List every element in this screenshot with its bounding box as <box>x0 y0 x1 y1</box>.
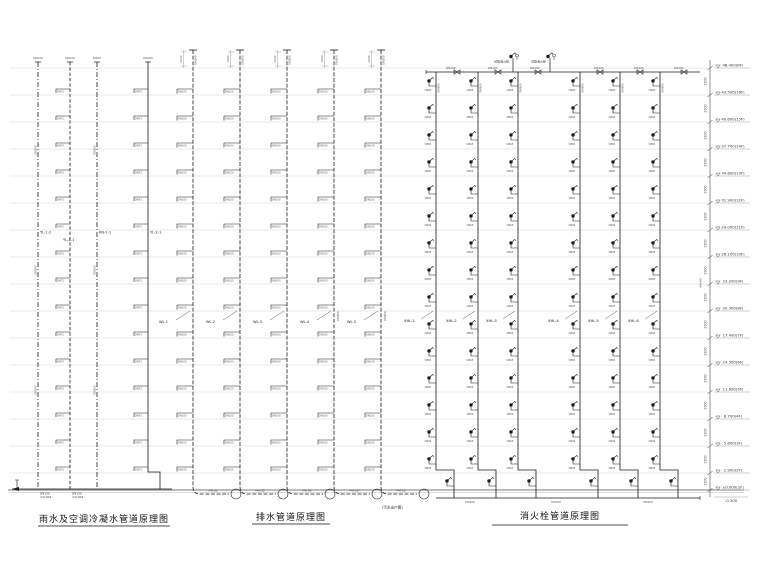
drawing-sheet: 雨水及空调冷凝水管道原理图 排水管道原理图 消火栓管道原理图 46.400(RF… <box>0 0 760 570</box>
label-leader <box>503 311 515 319</box>
hydrant-flag-icon <box>471 429 476 433</box>
hydrant-flag-icon <box>653 186 658 190</box>
hydrant-branch-pipe <box>471 110 478 113</box>
branch-label: DN100 <box>366 414 375 418</box>
hydrant-branch-label: DN65 <box>507 251 514 254</box>
hydrant-branch-pipe <box>429 245 436 248</box>
hydrant-flag-icon <box>573 294 578 298</box>
hydrant-branch-pipe <box>471 380 478 383</box>
outlet-slope-label: i=0.02 <box>349 489 359 493</box>
hydrant-branch-pipe <box>653 461 660 464</box>
test-hydrant-label: 试验消火栓 <box>494 59 509 64</box>
hydrant-branch-pipe <box>573 299 580 302</box>
hydrant-flag-icon <box>471 267 476 271</box>
branch-label: DN100 <box>272 414 281 418</box>
branch-label: DN100 <box>225 225 234 229</box>
hydrant-branch-label: DN65 <box>609 278 616 281</box>
hydrant-branch-pipe <box>653 137 660 140</box>
hydrant-branch-pipe <box>429 326 436 329</box>
hydrant-flag-icon <box>573 240 578 244</box>
branch-label: DN100 <box>366 117 375 121</box>
storey-height-dim: 2900 <box>704 401 708 409</box>
hydrant-flag-icon <box>573 402 578 406</box>
hydrant-branch-pipe <box>613 245 620 248</box>
hydrant-branch-label: DN65 <box>467 278 474 281</box>
vent-side-label: DN100 <box>335 55 339 65</box>
hydrant-flag-icon <box>613 267 618 271</box>
branch-label: DN100 <box>225 90 234 94</box>
branch-label: DN100 <box>319 90 328 94</box>
hydrant-branch-label: DN65 <box>425 170 432 173</box>
hydrant-flag-icon <box>511 429 516 433</box>
hydrant-flag-icon <box>613 429 618 433</box>
elevation-label: 29.000(11F) <box>721 225 745 230</box>
hydrant-branch-label: DN65 <box>609 170 616 173</box>
elevation-triangle-icon <box>716 335 720 338</box>
hydrant-branch-pipe <box>613 407 620 410</box>
branch-label: DN75 <box>57 251 64 255</box>
hydrant-flag-icon <box>613 402 618 406</box>
hydrant-branch-label: DN65 <box>609 386 616 389</box>
riser-size-label: DN100 <box>34 145 38 155</box>
riser-pipe <box>580 72 598 498</box>
hydrant-branch-label: DN65 <box>649 332 656 335</box>
hydrant-flag-icon <box>511 53 516 57</box>
vent-side-label: DN100 <box>382 55 386 65</box>
riser-size-label: DN100 <box>437 83 441 93</box>
hydrant-flag-icon <box>573 159 578 163</box>
branch-label: DN100 <box>225 441 234 445</box>
elevation-label: 8.700(4F) <box>724 414 743 419</box>
branch-label: DN100 <box>319 198 328 202</box>
hydrant-branch-pipe <box>653 353 660 356</box>
label-leader <box>463 311 475 319</box>
hydrant-branch-pipe <box>653 245 660 248</box>
riser-size-label: DN100 <box>661 83 665 93</box>
hydrant-flag-icon <box>511 78 516 82</box>
hydrant-branch-pipe <box>511 326 518 329</box>
branch-label: DN75 <box>57 224 64 228</box>
hydrant-riser-XHL-1: DN100DN65DN65DN65DN65DN65DN65DN65DN65DN6… <box>404 72 454 498</box>
hydrant-flag-icon <box>429 294 434 298</box>
hydrant-flag-icon <box>671 478 676 482</box>
hydrant-branch-label: DN65 <box>467 143 474 146</box>
riser-pipe <box>193 50 229 494</box>
hydrant-branch-pipe <box>429 110 436 113</box>
hydrant-flag-icon <box>573 105 578 109</box>
hydrant-branch-label: DN65 <box>507 305 514 308</box>
hydrant-branch-label: DN65 <box>425 413 432 416</box>
hydrant-branch-label: DN65 <box>569 440 576 443</box>
hydrant-flag-icon <box>613 240 618 244</box>
hydrant-branch-pipe <box>429 461 436 464</box>
hydrant-branch-label: DN65 <box>467 440 474 443</box>
hydrant-branch-pipe <box>573 191 580 194</box>
hydrant-branch-pipe <box>511 272 518 275</box>
branch-label: DN100 <box>225 279 234 283</box>
branch-label: DN75 <box>57 386 64 390</box>
hydrant-branch-label: DN65 <box>425 116 432 119</box>
vent-side-label: DN100 <box>241 55 245 65</box>
riser-id-label: YL-1-2 <box>40 231 51 235</box>
hydrant-branch-pipe <box>573 164 580 167</box>
branch-label: DN100 <box>272 90 281 94</box>
hydrant-branch-label: DN65 <box>425 467 432 470</box>
riser-size-label: DN100 <box>581 83 585 93</box>
hydrant-flag-icon <box>529 478 534 482</box>
riser-id-label: XHL-1 <box>404 319 415 323</box>
hydrant-flag-icon <box>613 375 618 379</box>
branch-label: DN100 <box>272 144 281 148</box>
hydrant-section-title: 消火栓管道原理图 <box>520 510 600 522</box>
branch-label: DN100 <box>225 387 234 391</box>
branch-label: DN100 <box>366 360 375 364</box>
hydrant-branch-label: DN65 <box>609 440 616 443</box>
detail-ref-circle <box>419 489 429 499</box>
branch-label: DN100 <box>366 198 375 202</box>
hydrant-flag-icon <box>573 456 578 460</box>
piping-schematic-drawing: 雨水及空调冷凝水管道原理图 排水管道原理图 消火栓管道原理图 46.400(RF… <box>0 0 760 570</box>
elevation-label: 20.300(8F) <box>723 306 744 311</box>
hydrant-branch-pipe <box>653 272 660 275</box>
hydrant-flag-icon <box>653 375 658 379</box>
hydrant-branch-pipe <box>653 191 660 194</box>
hydrant-branch-label: DN65 <box>609 197 616 200</box>
branch-label: DN100 <box>225 333 234 337</box>
hydrant-branch-label: DN65 <box>569 251 576 254</box>
outlet-slope-label: i=0.003 <box>40 495 51 499</box>
branch-label: DN100 <box>178 225 187 229</box>
hydrant-flag-icon <box>653 456 658 460</box>
hydrant-branch-label: DN65 <box>425 224 432 227</box>
hydrant-branch-pipe <box>653 83 660 86</box>
hydrant-branch-pipe <box>511 137 518 140</box>
label-leader <box>565 311 577 319</box>
branch-label: DN75 <box>135 197 142 201</box>
air-valve-icon <box>553 54 556 57</box>
outlet-slope-label: i=0.02 <box>396 489 406 493</box>
hydrant-flag-icon <box>447 478 452 482</box>
hydrant-flag-icon <box>429 402 434 406</box>
hydrant-branch-label: DN65 <box>467 467 474 470</box>
hydrant-branch-label: DN65 <box>569 197 576 200</box>
detail-ref-circle <box>372 489 382 499</box>
hydrant-branch-label: DN65 <box>425 251 432 254</box>
hydrant-flag-icon <box>429 375 434 379</box>
hydrant-branch-pipe <box>613 137 620 140</box>
hydrant-flag-icon <box>613 132 618 136</box>
hydrant-riser-XHL-5: DN100DN65DN65DN65DN65DN65DN65DN65DN65DN6… <box>588 72 638 498</box>
hydrant-branch-label: DN65 <box>507 89 514 92</box>
label-leader <box>176 311 190 320</box>
elevation-triangle-icon <box>716 173 720 176</box>
label-leader <box>605 311 617 319</box>
hydrant-branch-pipe <box>511 434 518 437</box>
hydrant-branch-label: DN65 <box>649 89 656 92</box>
branch-label: DN75 <box>135 467 142 471</box>
hydrant-branch-pipe <box>613 164 620 167</box>
branch-label: DN100 <box>225 360 234 364</box>
hydrant-branch-label: DN65 <box>649 440 656 443</box>
hydrant-flag-icon <box>429 186 434 190</box>
branch-label: DN100 <box>319 468 328 472</box>
hydrant-flag-icon <box>613 456 618 460</box>
outlet-slope-label: i=0.02 <box>302 489 312 493</box>
hydrant-branch-label: DN65 <box>569 89 576 92</box>
hydrant-flag-icon <box>573 375 578 379</box>
below-ground-label: -0.300 <box>725 498 738 503</box>
hydrant-flag-icon <box>429 78 434 82</box>
hydrant-branch-label: DN65 <box>569 224 576 227</box>
branch-label: DN75 <box>57 143 64 147</box>
hydrant-branch-pipe <box>653 380 660 383</box>
hydrant-flag-icon <box>653 348 658 352</box>
riser-id-label: XHL-6 <box>628 319 639 323</box>
detail-ref-circle <box>278 489 288 499</box>
hydrant-flag-icon <box>653 240 658 244</box>
hydrant-branch-pipe <box>573 272 580 275</box>
hydrant-branch-label: DN65 <box>467 170 474 173</box>
branch-label: DN100 <box>272 468 281 472</box>
hydrant-branch-pipe <box>429 299 436 302</box>
hydrant-branch-pipe <box>653 326 660 329</box>
branch-label: DN75 <box>57 359 64 363</box>
storey-height-dim: 2900 <box>704 428 708 436</box>
branch-label: DN100 <box>272 198 281 202</box>
branch-label: DN100 <box>272 387 281 391</box>
hydrant-branch-pipe <box>511 245 518 248</box>
branch-label: DN75 <box>57 305 64 309</box>
hydrant-branch-pipe <box>511 461 518 464</box>
hydrant-branch-label: DN65 <box>467 413 474 416</box>
hydrant-branch-label: DN65 <box>649 413 656 416</box>
branch-label: DN75 <box>135 116 142 120</box>
hydrant-branch-pipe <box>573 353 580 356</box>
hydrant-flag-icon <box>471 132 476 136</box>
hydrant-flag-icon <box>573 321 578 325</box>
hydrant-flag-icon <box>471 375 476 379</box>
storey-height-dim: 2900 <box>704 212 708 220</box>
elevation-label: 2.900(2F) <box>724 468 743 473</box>
branch-label: DN100 <box>319 387 328 391</box>
hydrant-flag-icon <box>653 132 658 136</box>
branch-label: DN100 <box>319 225 328 229</box>
hydrant-branch-label: DN65 <box>649 305 656 308</box>
elevation-label: 46.400(RF) <box>722 63 744 68</box>
branch-label: DN75 <box>135 224 142 228</box>
hydrant-branch-label: DN65 <box>507 224 514 227</box>
hydrant-branch-label: DN65 <box>467 251 474 254</box>
hydrant-branch-label: DN65 <box>649 251 656 254</box>
hydrant-branch-pipe <box>511 83 518 86</box>
label-leader <box>223 311 237 320</box>
header-size-label: DN100 <box>674 66 684 70</box>
main-size-label: DN100 <box>465 500 475 504</box>
branch-label: DN100 <box>319 306 328 310</box>
hydrant-branch-label: DN65 <box>569 386 576 389</box>
elevation-label: ±0.000(1F) <box>722 485 744 490</box>
hydrant-branch-label: DN65 <box>609 251 616 254</box>
hydrant-branch-label: DN65 <box>425 278 432 281</box>
riser-id-label: WL-4 <box>300 320 310 324</box>
hydrant-branch-pipe <box>613 299 620 302</box>
branch-label: DN100 <box>319 117 328 121</box>
label-leader <box>421 311 433 319</box>
hydrant-branch-label: DN65 <box>609 89 616 92</box>
air-valve-icon <box>516 54 519 57</box>
riser-pipe <box>381 50 417 494</box>
hydrant-flag-icon <box>573 267 578 271</box>
label-leader <box>364 311 378 320</box>
storey-height-dim: 2900 <box>704 320 708 328</box>
hydrant-flag-icon <box>429 132 434 136</box>
riser-id-label: WL-3 <box>253 320 262 324</box>
riser-id-label: XHL-5 <box>588 319 599 323</box>
detail-ref-circle <box>325 489 335 499</box>
branch-label: DN100 <box>178 414 187 418</box>
branch-label: DN100 <box>319 144 328 148</box>
hydrant-branch-pipe <box>613 272 620 275</box>
test-hydrant-assembly: 试验消火栓 <box>494 53 519 72</box>
test-hydrant-label: 试验消火栓 <box>531 59 546 64</box>
branch-label: DN100 <box>272 306 281 310</box>
hydrant-branch-pipe <box>573 137 580 140</box>
hydrant-branch-pipe <box>471 434 478 437</box>
riser-pipe <box>436 72 454 498</box>
hydrant-branch-label: DN65 <box>507 143 514 146</box>
hydrant-flag-icon <box>511 294 516 298</box>
branch-label: DN100 <box>366 306 375 310</box>
drainage-section-title: 排水管道原理图 <box>256 511 326 523</box>
hydrant-header: DN100DN100DN100DN100DN100DN100 <box>426 66 700 74</box>
hydrant-flag-icon <box>631 478 636 482</box>
hydrant-branch-label: DN65 <box>507 197 514 200</box>
hydrant-flag-icon <box>429 267 434 271</box>
hydrant-branch-pipe <box>429 407 436 410</box>
elevation-triangle-icon <box>716 146 720 149</box>
hydrant-branch-pipe <box>511 407 518 410</box>
hydrant-branch-pipe <box>447 483 454 486</box>
hydrant-branch-label: DN65 <box>425 143 432 146</box>
hydrant-flag-icon <box>429 213 434 217</box>
hydrant-branch-pipe <box>613 434 620 437</box>
hydrant-branch-label: DN65 <box>467 116 474 119</box>
elevation-triangle-icon <box>716 92 720 95</box>
hydrant-branch-label: DN65 <box>569 143 576 146</box>
hydrant-branch-label: DN65 <box>507 332 514 335</box>
hydrant-branch-pipe <box>471 137 478 140</box>
riser-pipe <box>518 72 536 498</box>
hydrant-branch-pipe <box>429 272 436 275</box>
rainwater-riser-YL-1-1: DN100DN75DN75DN75DN75DN75DN75DN75DN75DN7… <box>56 56 75 489</box>
storey-height-dim: 2900 <box>704 77 708 85</box>
vent-height-dim: 2000 <box>320 55 324 62</box>
hydrant-branch-label: DN65 <box>467 305 474 308</box>
hydrant-branch-label: DN65 <box>569 413 576 416</box>
label-leader <box>270 311 284 320</box>
hydrant-flag-icon <box>573 78 578 82</box>
hydrant-branch-pipe <box>429 434 436 437</box>
hydrant-branch-label: DN65 <box>467 224 474 227</box>
branch-label: DN100 <box>225 144 234 148</box>
hydrant-branch-pipe <box>471 326 478 329</box>
branch-label: DN75 <box>135 251 142 255</box>
hydrant-riser-XHL-3: DN100DN65DN65DN65DN65DN65DN65DN65DN65DN6… <box>486 72 536 498</box>
branch-label: DN75 <box>57 89 64 93</box>
branch-label: DN100 <box>178 171 187 175</box>
outlet-slope-label: i=0.003 <box>72 495 83 499</box>
vent-note-label: DN100 <box>336 311 340 321</box>
hydrant-branch-label: DN65 <box>649 467 656 470</box>
elevation-triangle-icon <box>716 281 720 284</box>
branch-label: DN100 <box>366 252 375 256</box>
hydrant-flag-icon <box>653 402 658 406</box>
branch-label: DN100 <box>319 441 328 445</box>
hydrant-flag-icon <box>653 429 658 433</box>
hydrant-branch-pipe <box>613 218 620 221</box>
hydrant-branch-label: DN65 <box>569 332 576 335</box>
hydrant-flag-icon <box>471 159 476 163</box>
hydrant-branch-pipe <box>429 137 436 140</box>
hydrant-branch-label: DN65 <box>569 278 576 281</box>
hydrant-branch-label: DN65 <box>649 386 656 389</box>
hydrant-flag-icon <box>471 240 476 244</box>
outlet-slope-label: i=0.02 <box>255 489 265 493</box>
hydrant-branch-label: DN65 <box>569 170 576 173</box>
riser-pipe <box>334 50 370 494</box>
hydrant-branch-label: DN65 <box>569 359 576 362</box>
branch-label: DN100 <box>178 252 187 256</box>
hydrant-flag-icon <box>511 159 516 163</box>
hydrant-branch-pipe <box>591 483 598 486</box>
hydrant-flag-icon <box>471 456 476 460</box>
storey-height-dim: 2900 <box>704 185 708 193</box>
branch-label: DN100 <box>225 414 234 418</box>
branch-label: DN75 <box>135 332 142 336</box>
hydrant-flag-icon <box>613 294 618 298</box>
rainwater-riser-YL-2-1: DN100DN75DN75DN75DN75DN75DN75DN75DN75DN7… <box>134 56 161 489</box>
hydrant-flag-icon <box>573 132 578 136</box>
branch-label: DN100 <box>366 387 375 391</box>
hydrant-branch-pipe <box>489 483 496 486</box>
hydrant-branch-pipe <box>471 164 478 167</box>
hydrant-branch-label: DN65 <box>649 224 656 227</box>
header-size-label: DN100 <box>488 66 498 70</box>
branch-label: DN100 <box>366 171 375 175</box>
elevation-triangle-icon <box>716 389 720 392</box>
elevation-triangle-icon <box>716 200 720 203</box>
hydrant-branch-pipe <box>613 461 620 464</box>
hydrant-flag-icon <box>471 78 476 82</box>
branch-label: DN100 <box>319 279 328 283</box>
hydrant-branch-pipe <box>573 218 580 221</box>
hydrant-flag-icon <box>471 294 476 298</box>
branch-label: DN100 <box>272 360 281 364</box>
hydrant-flag-icon <box>653 159 658 163</box>
hydrant-branch-label: DN65 <box>507 170 514 173</box>
branch-label: DN75 <box>135 386 142 390</box>
branch-label: DN100 <box>366 279 375 283</box>
rainwater-riser-KN-1-1: DN50DN100DN100DN100KN-1-1 <box>93 56 112 489</box>
hydrant-branch-label: DN65 <box>609 413 616 416</box>
hydrant-branch-pipe <box>613 326 620 329</box>
branch-label: DN100 <box>178 387 187 391</box>
riser-pipe <box>620 72 638 498</box>
riser-pipe <box>287 50 323 494</box>
hydrant-flag-icon <box>613 186 618 190</box>
branch-label: DN100 <box>178 306 187 310</box>
branch-label: DN100 <box>178 90 187 94</box>
